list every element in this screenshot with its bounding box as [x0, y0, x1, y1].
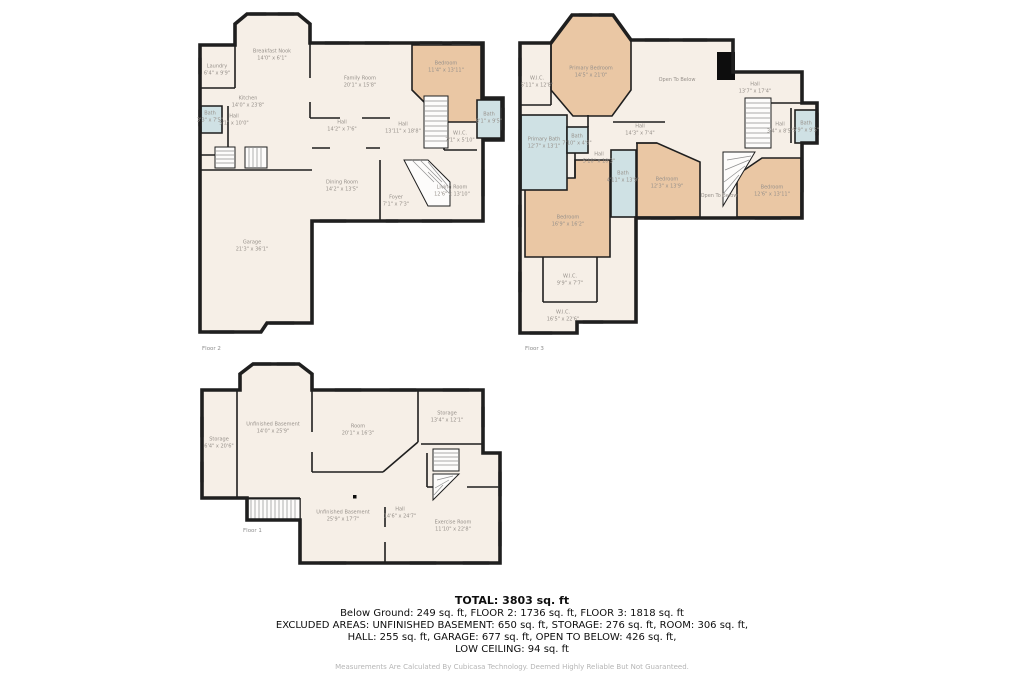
room-dims: 9'9" x 7'7" [557, 280, 583, 287]
room-dims: 12'7" x 13'1" [528, 143, 561, 150]
floor-3-primary-bath-area [521, 115, 567, 190]
room-label-unfinished-basement-top: Unfinished Basement14'0" x 25'9" [246, 422, 299, 435]
room-label-foyer: Foyer7'1" x 7'3" [383, 195, 409, 208]
room-dims: 5'9" x 9'5" [793, 127, 819, 134]
room-label-bedroom-middle: Bedroom12'3" x 13'9" [651, 177, 684, 190]
room-label-family-room: Family Room20'1" x 15'8" [344, 76, 377, 89]
room-dims: 16'9" x 16'2" [552, 221, 585, 228]
room-label-hall-right: Hall13'11" x 18'8" [385, 122, 421, 135]
room-label-bath-right: Bath8'1" x 9'5" [476, 112, 502, 125]
room-dims: 14'2" x 13'5" [326, 186, 359, 193]
room-name: Bedroom [651, 177, 684, 184]
room-label-exercise-room: Exercise Room11'10" x 22'8" [435, 520, 472, 533]
room-name: Dining Room [326, 180, 359, 187]
room-label-hall-top: Hall13'7" x 17'4" [739, 82, 772, 95]
room-dims: 13'7" x 17'4" [739, 88, 772, 95]
room-dims: 14'6" x 24'7" [384, 513, 417, 520]
room-label-open-to-below-1: Open To Below [659, 77, 696, 84]
summary-line-4: LOW CEILING: 94 sq. ft [0, 644, 1024, 656]
room-label-hall-center: Hall14'2" x 7'6" [327, 120, 356, 133]
room-label-wic: W.I.C.7'1" x 5'10" [445, 131, 474, 144]
room-label-wic-top: W.I.C.5'11" x 12'8" [521, 76, 554, 89]
room-name: Primary Bedroom [569, 66, 613, 73]
room-dims: 7'1" x 7'3" [383, 201, 409, 208]
room-label-room: Room20'1" x 16'3" [342, 424, 375, 437]
room-dims: 14'0" x 23'8" [232, 102, 265, 109]
room-label-bath-right: Bath5'9" x 9'5" [793, 121, 819, 134]
room-name: Exercise Room [435, 520, 472, 527]
room-dims: 14'5" x 21'0" [569, 72, 613, 79]
room-label-hall-left: Hall5'1" x 10'0" [219, 114, 248, 127]
room-dims: 3'4" x 8'5" [767, 128, 793, 135]
room-name: Living Room [434, 185, 470, 192]
room-dims: 14'3" x 7'4" [625, 130, 654, 137]
room-dims: 12'6" x 13'10" [434, 191, 470, 198]
room-label-hall-mid: Hall5'10" x 10'3" [583, 152, 616, 165]
room-dims: 13'4" x 12'1" [431, 417, 464, 424]
room-name: Open To Below [659, 77, 696, 84]
room-name: Open To Below [701, 193, 738, 200]
summary-line-2: EXCLUDED AREAS: UNFINISHED BASEMENT: 650… [0, 620, 1024, 632]
room-label-hall-center: Hall14'3" x 7'4" [625, 124, 654, 137]
room-dims: 8'1" x 9'5" [476, 118, 502, 125]
room-dims: 25'9" x 17'7" [316, 516, 369, 523]
room-label-living-room: Living Room12'6" x 13'10" [434, 185, 470, 198]
room-dims: 14'0" x 25'9" [246, 428, 299, 435]
floor-3-caption: Floor 3 [525, 346, 544, 352]
room-label-wic-mid: W.I.C.9'9" x 7'7" [557, 274, 583, 287]
room-label-open-to-below-2: Open To Below [701, 193, 738, 200]
room-label-hall-small: Hall3'4" x 8'5" [767, 122, 793, 135]
room-label-storage-right: Storage13'4" x 12'1" [431, 411, 464, 424]
room-dims: 12'6" x 13'11" [754, 191, 790, 198]
floor-1-caption: Floor 1 [243, 528, 262, 534]
room-label-primary-bath: Primary Bath12'7" x 13'1" [528, 137, 561, 150]
room-dims: 13'11" x 18'8" [385, 128, 421, 135]
room-label-bedroom: Bedroom11'4" x 13'11" [428, 61, 464, 74]
floor-2: Breakfast Nook14'0" x 6'1" Laundry6'4" x… [190, 10, 510, 360]
summary-block: TOTAL: 3803 sq. ft Below Ground: 249 sq.… [0, 594, 1024, 671]
room-label-wic-bottom: W.I.C.16'5" x 22'6" [547, 310, 580, 323]
summary-line-3: HALL: 255 sq. ft, GARAGE: 677 sq. ft, OP… [0, 632, 1024, 644]
floor-3: W.I.C.5'11" x 12'8" Primary Bedroom14'5"… [515, 10, 825, 360]
summary-line-1: Below Ground: 249 sq. ft, FLOOR 2: 1736 … [0, 608, 1024, 620]
room-dims: 20'1" x 15'8" [344, 82, 377, 89]
floorplan-page: Breakfast Nook14'0" x 6'1" Laundry6'4" x… [0, 0, 1024, 683]
floor-1-plan [195, 362, 515, 577]
room-label-dining-room: Dining Room14'2" x 13'5" [326, 180, 359, 193]
room-dims: 6'4" x 9'9" [204, 70, 230, 77]
room-label-laundry: Laundry6'4" x 9'9" [204, 64, 230, 77]
room-dims: 7'1" x 5'10" [445, 137, 474, 144]
room-dims: 14'2" x 7'6" [327, 126, 356, 133]
room-name: Bedroom [552, 215, 585, 222]
room-name: Laundry [204, 64, 230, 71]
room-label-kitchen: Kitchen14'0" x 23'8" [232, 96, 265, 109]
room-label-primary-bedroom: Primary Bedroom14'5" x 21'0" [569, 66, 613, 79]
disclaimer-text: Measurements Are Calculated By Cubicasa … [0, 663, 1024, 671]
room-dims: 4'11" x 13'9" [607, 177, 640, 184]
room-dims: 12'3" x 13'9" [651, 183, 684, 190]
room-label-breakfast-nook: Breakfast Nook14'0" x 6'1" [253, 49, 291, 62]
room-label-garage: Garage21'3" x 36'1" [236, 240, 269, 253]
room-dims: 20'1" x 16'3" [342, 430, 375, 437]
room-name: Unfinished Basement [316, 510, 369, 517]
room-dims: 5'1" x 10'0" [219, 120, 248, 127]
room-label-storage-left: Storage6'4" x 20'6" [204, 437, 233, 450]
room-label-bath-small: Bath7'10" x 4'9" [562, 134, 591, 147]
room-dims: 7'10" x 4'9" [562, 140, 591, 147]
summary-total: TOTAL: 3803 sq. ft [0, 594, 1024, 607]
room-label-bath-vertical: Bath4'11" x 13'9" [607, 171, 640, 184]
room-name: Primary Bath [528, 137, 561, 144]
room-label-unfinished-basement-bottom: Unfinished Basement25'9" x 17'7" [316, 510, 369, 523]
room-dims: 11'4" x 13'11" [428, 67, 464, 74]
room-dims: 5'10" x 10'3" [583, 158, 616, 165]
room-label-hall: Hall14'6" x 24'7" [384, 507, 417, 520]
floor-2-caption: Floor 2 [202, 346, 221, 352]
room-name: Unfinished Basement [246, 422, 299, 429]
room-dims: 6'4" x 20'6" [204, 443, 233, 450]
room-name: Family Room [344, 76, 377, 83]
room-dims: 16'5" x 22'6" [547, 316, 580, 323]
room-label-bedroom-right: Bedroom12'6" x 13'11" [754, 185, 790, 198]
room-dims: 11'10" x 22'8" [435, 526, 472, 533]
room-name: Breakfast Nook [253, 49, 291, 56]
room-dims: 5'11" x 12'8" [521, 82, 554, 89]
room-dims: 14'0" x 6'1" [253, 55, 291, 62]
room-label-bedroom-left: Bedroom16'9" x 16'2" [552, 215, 585, 228]
room-dims: 21'3" x 36'1" [236, 246, 269, 253]
floor-1: Storage6'4" x 20'6" Unfinished Basement1… [195, 362, 515, 577]
support-post [353, 495, 357, 499]
